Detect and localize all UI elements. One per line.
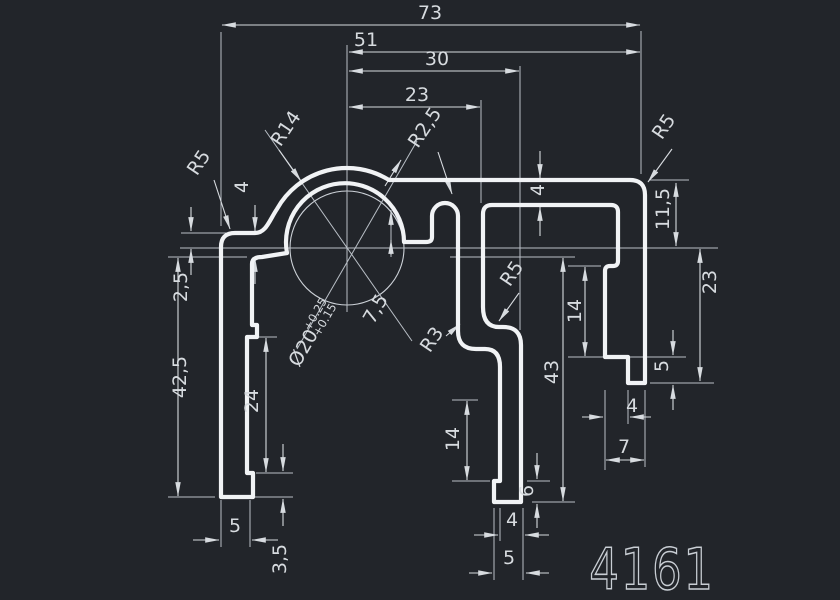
- dim-right-14: 14: [564, 299, 586, 323]
- dim-right-11-5: 11,5: [652, 188, 674, 230]
- part-number-group: 4161: [589, 538, 714, 600]
- dim-radius-r5-mid: R5: [496, 257, 528, 290]
- dim-right-finger-7: 7: [618, 436, 630, 458]
- dim-mid-leg-4: 4: [506, 509, 518, 531]
- dim-radius-r14: R14: [266, 107, 305, 150]
- dimension-lines: [178, 25, 700, 501]
- dim-radius-r2-5: R2,5: [404, 103, 447, 151]
- dim-depth-7-5: 7,5: [359, 290, 393, 327]
- dim-mid-foot-5: 5: [503, 547, 515, 569]
- dim-radius-r5-right: R5: [648, 110, 680, 143]
- dim-width-51: 51: [354, 29, 378, 51]
- dim-height-42-5: 42,5: [169, 356, 191, 398]
- dim-diameter-group: Ø20 +0.25 +0.15: [282, 295, 340, 370]
- dim-right-notch-4: 4: [626, 395, 638, 417]
- dim-width-73: 73: [418, 2, 442, 24]
- dim-mid-14: 14: [442, 427, 464, 451]
- dim-offset-2-5: 2,5: [170, 272, 192, 302]
- dim-width-23: 23: [405, 84, 429, 106]
- part-number: 4161: [589, 538, 714, 600]
- reference-lines: [180, 45, 718, 349]
- dim-height-43: 43: [541, 360, 563, 384]
- dim-radius-r5-left: R5: [183, 146, 215, 179]
- cad-viewport: 73 51 30 23 5 4 7 4 5 4 2,5 42,5 24 3,5 …: [0, 0, 840, 600]
- dim-width-30: 30: [425, 48, 449, 70]
- dim-left-foot-5: 5: [229, 515, 241, 537]
- cad-drawing-canvas: 73 51 30 23 5 4 7 4 5 4 2,5 42,5 24 3,5 …: [0, 0, 840, 600]
- dim-mid-6: 6: [516, 485, 538, 497]
- dim-web-4: 4: [527, 184, 549, 196]
- dim-right-23: 23: [699, 270, 721, 294]
- dim-radius-r3: R3: [416, 323, 448, 356]
- dim-left-3-5: 3,5: [269, 544, 291, 574]
- dim-right-5: 5: [651, 360, 673, 372]
- dim-left-24: 24: [241, 389, 263, 413]
- dim-ledge-4: 4: [231, 181, 253, 193]
